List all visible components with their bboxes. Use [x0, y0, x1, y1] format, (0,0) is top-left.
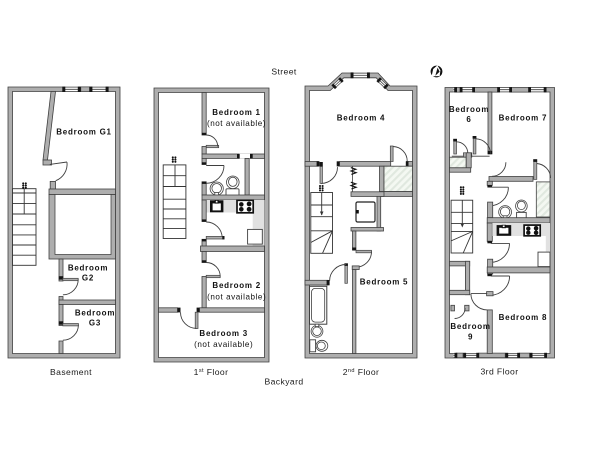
svg-text:G3: G3	[89, 319, 101, 328]
svg-text:Bedroom: Bedroom	[68, 264, 108, 273]
svg-text:G2: G2	[82, 274, 94, 283]
svg-text:Street: Street	[271, 67, 297, 77]
svg-text:(not available): (not available)	[194, 340, 253, 349]
svg-text:6: 6	[466, 115, 471, 124]
svg-text:Basement: Basement	[50, 367, 92, 377]
svg-text:Bedroom 2: Bedroom 2	[212, 281, 261, 290]
svg-text:9: 9	[468, 333, 473, 342]
svg-text:Bedroom 1: Bedroom 1	[212, 108, 261, 117]
svg-text:3rd Floor: 3rd Floor	[481, 367, 519, 377]
svg-text:Bedroom: Bedroom	[75, 309, 115, 318]
svg-text:(not available): (not available)	[207, 119, 266, 128]
svg-text:Backyard: Backyard	[264, 377, 303, 387]
svg-text:Bedroom 8: Bedroom 8	[499, 313, 548, 322]
svg-text:Bedroom 4: Bedroom 4	[337, 114, 386, 123]
svg-text:Bedroom 3: Bedroom 3	[199, 329, 248, 338]
svg-text:Bedroom: Bedroom	[450, 322, 490, 331]
svg-text:Bedroom: Bedroom	[449, 105, 489, 114]
svg-text:Bedroom 7: Bedroom 7	[499, 114, 548, 123]
svg-text:(not available): (not available)	[207, 293, 266, 302]
svg-text:Bedroom G1: Bedroom G1	[56, 128, 112, 137]
svg-text:Bedroom 5: Bedroom 5	[360, 278, 409, 287]
